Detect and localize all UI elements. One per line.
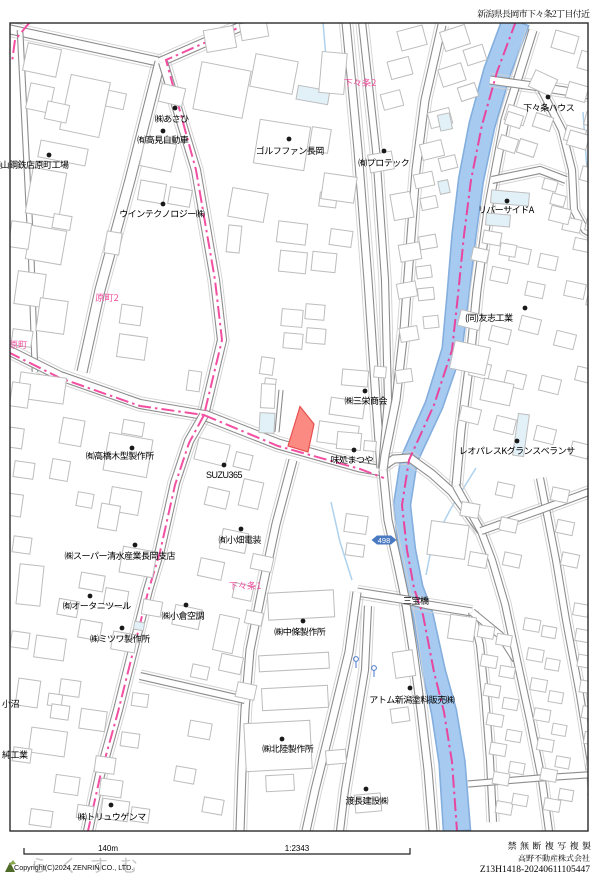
svg-text:Z13H1418-20240611105447: Z13H1418-20240611105447	[480, 865, 590, 875]
svg-text:1:2343: 1:2343	[285, 844, 310, 853]
svg-text:Copyright(C)2024 ZENRIN CO., L: Copyright(C)2024 ZENRIN CO., LTD.	[14, 863, 133, 872]
svg-text:140m: 140m	[98, 844, 118, 853]
svg-text:SUZU365: SUZU365	[206, 470, 243, 480]
svg-text:498: 498	[378, 536, 391, 545]
